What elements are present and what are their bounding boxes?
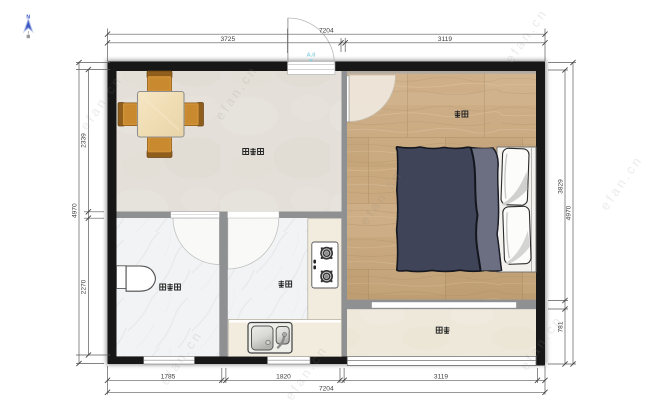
- svg-text:7204: 7204: [319, 385, 334, 392]
- svg-text:3829: 3829: [557, 179, 564, 194]
- svg-text:7204: 7204: [319, 27, 334, 34]
- svg-text:3119: 3119: [434, 373, 449, 380]
- svg-text:2339: 2339: [81, 133, 88, 148]
- svg-text:2270: 2270: [81, 279, 88, 294]
- svg-text:A.0: A.0: [307, 53, 316, 59]
- svg-text:1820: 1820: [276, 373, 291, 380]
- svg-text:4970: 4970: [565, 205, 572, 220]
- svg-text:3725: 3725: [220, 36, 235, 43]
- svg-text:3119: 3119: [438, 36, 453, 43]
- svg-text:4970: 4970: [71, 203, 78, 218]
